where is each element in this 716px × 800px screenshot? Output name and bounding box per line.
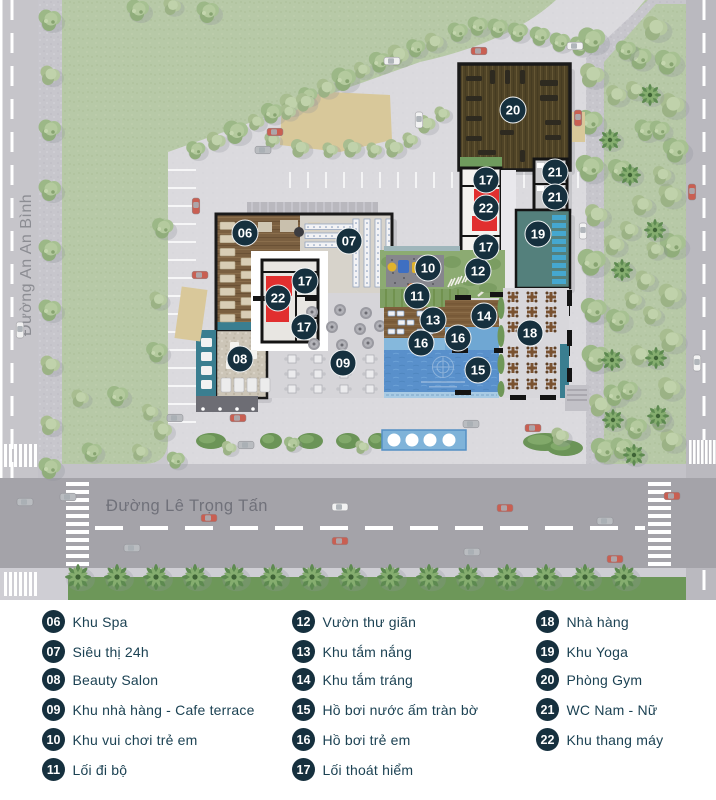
svg-text:07: 07	[342, 234, 356, 249]
svg-text:06: 06	[238, 226, 252, 241]
svg-text:13: 13	[426, 313, 440, 328]
svg-text:08: 08	[233, 352, 247, 367]
svg-text:12: 12	[471, 264, 485, 279]
svg-text:Đường Lê Trọng Tấn: Đường Lê Trọng Tấn	[106, 497, 268, 515]
svg-text:17: 17	[297, 320, 311, 335]
svg-text:16: 16	[414, 336, 428, 351]
svg-text:14: 14	[477, 309, 492, 324]
svg-text:15: 15	[471, 363, 485, 378]
svg-text:10: 10	[421, 261, 435, 276]
svg-text:20: 20	[506, 103, 520, 118]
svg-text:17: 17	[479, 240, 493, 255]
svg-text:19: 19	[531, 227, 545, 242]
svg-text:21: 21	[548, 165, 562, 180]
svg-text:22: 22	[479, 201, 493, 216]
svg-text:17: 17	[298, 274, 312, 289]
svg-text:21: 21	[548, 190, 562, 205]
svg-text:09: 09	[336, 356, 350, 371]
svg-text:18: 18	[523, 326, 537, 341]
svg-text:22: 22	[271, 291, 285, 306]
svg-text:17: 17	[479, 173, 493, 188]
svg-text:11: 11	[410, 289, 424, 304]
svg-text:16: 16	[451, 331, 465, 346]
svg-text:Đường An An Bình: Đường An An Bình	[18, 194, 35, 336]
